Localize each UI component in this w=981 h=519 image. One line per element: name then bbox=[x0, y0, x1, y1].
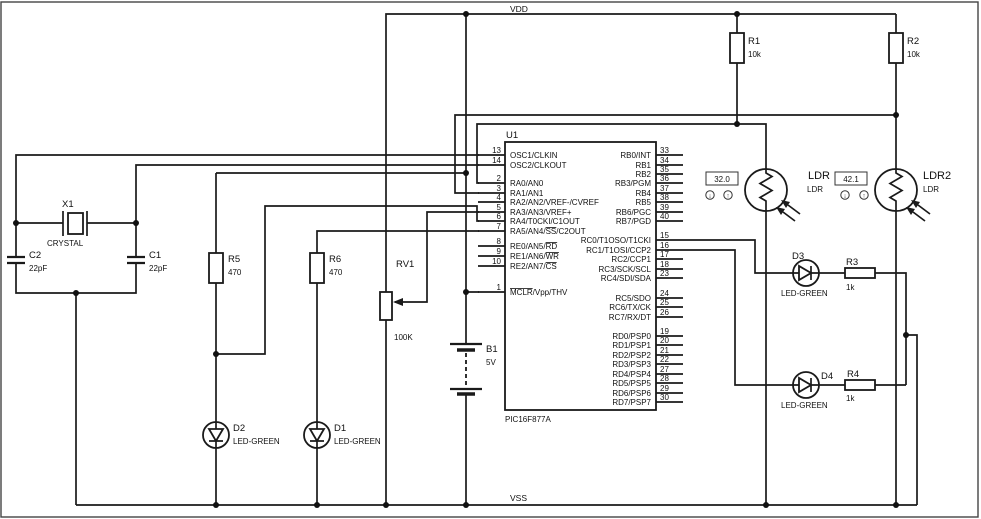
junction-dot bbox=[463, 289, 469, 295]
pin-number: 16 bbox=[660, 241, 669, 250]
pin-number: 25 bbox=[660, 298, 669, 307]
schematic-canvas: U1 PIC16F877A 13OSC1/CLKIN14OSC2/CLKOUT2… bbox=[0, 0, 981, 519]
pin-name: RC6/TX/CK bbox=[609, 303, 651, 312]
pin-name: RA3/AN3/VREF+ bbox=[510, 208, 572, 217]
junction-dot bbox=[73, 290, 79, 296]
capacitor-c2: C2 22pF bbox=[7, 250, 47, 273]
pin-name: RD7/PSP7 bbox=[612, 398, 651, 407]
resistor-ref: R4 bbox=[847, 369, 859, 380]
resistor-r3: R3 1k bbox=[845, 257, 875, 292]
pot-body bbox=[380, 292, 392, 320]
junction-dot bbox=[893, 112, 899, 118]
pin-number: 38 bbox=[660, 193, 669, 202]
resistor-body bbox=[209, 253, 223, 283]
ldr-light-arrows bbox=[913, 205, 930, 221]
down-arrow-icon[interactable]: ↓ bbox=[708, 193, 711, 200]
battery-b1: B1 5V bbox=[450, 344, 498, 394]
ldr2-ref: LDR2 bbox=[923, 170, 951, 182]
wire bbox=[16, 155, 479, 293]
pin-number: 40 bbox=[660, 212, 669, 221]
pin-name: OSC1/CLKIN bbox=[510, 151, 558, 160]
resistor-ref: R5 bbox=[228, 254, 240, 265]
pin-name: RD2/PSP2 bbox=[612, 351, 651, 360]
ldr-arrowhead bbox=[906, 207, 915, 215]
pin-number: 14 bbox=[492, 156, 501, 165]
junction-dot bbox=[213, 351, 219, 357]
pin-number: 3 bbox=[497, 184, 502, 193]
resistor-ref: R6 bbox=[329, 254, 341, 265]
led-value: LED-GREEN bbox=[233, 437, 280, 446]
ldr2-model: LDR bbox=[923, 185, 939, 194]
mcu-part-label: PIC16F877A bbox=[505, 415, 551, 424]
pin-number: 15 bbox=[660, 231, 669, 240]
resistor-r2: R2 10k bbox=[889, 33, 921, 63]
capacitor-ref: C2 bbox=[29, 250, 41, 261]
vdd-rail-label: VDD bbox=[510, 4, 528, 14]
junction-dot bbox=[314, 502, 320, 508]
resistor-body bbox=[310, 253, 324, 283]
pin-number: 8 bbox=[497, 237, 502, 246]
pin-name: RB6/PGC bbox=[616, 208, 651, 217]
pin-number: 35 bbox=[660, 165, 669, 174]
pin-name: RE1/AN6/WR bbox=[510, 252, 559, 261]
led-d1: D1 LED-GREEN bbox=[304, 422, 381, 448]
pin-number: 30 bbox=[660, 393, 669, 402]
pin-name: RB1 bbox=[635, 161, 651, 170]
wire bbox=[466, 14, 479, 505]
pin-number: 7 bbox=[497, 222, 502, 231]
resistor-value: 10k bbox=[907, 50, 921, 59]
potentiometer-rv1: RV1 100K bbox=[380, 259, 414, 342]
pin-name: RA1/AN1 bbox=[510, 189, 544, 198]
pin-number: 34 bbox=[660, 156, 669, 165]
junction-dots bbox=[13, 11, 909, 508]
vss-rail-label: VSS bbox=[510, 493, 527, 503]
pin-name: RB7/PGD bbox=[616, 217, 651, 226]
capacitor-plates bbox=[7, 257, 25, 263]
capacitor-ref: C1 bbox=[149, 250, 161, 261]
crystal-body bbox=[68, 213, 83, 234]
capacitor-plates bbox=[127, 257, 145, 263]
ldr1-symbol bbox=[745, 169, 800, 221]
wire bbox=[386, 212, 479, 505]
pin-number: 9 bbox=[497, 247, 502, 256]
resistor-body bbox=[845, 268, 875, 278]
pin-name: RE0/AN5/RD bbox=[510, 242, 557, 251]
ldr1-model: LDR bbox=[807, 185, 823, 194]
pin-name: RB3/PGM bbox=[615, 179, 651, 188]
resistor-ref: R3 bbox=[846, 257, 858, 268]
resistor-value: 470 bbox=[329, 268, 343, 277]
led-value: LED-GREEN bbox=[781, 401, 828, 410]
resistor-r5: R5 470 bbox=[209, 253, 242, 283]
pin-name: RB0/INT bbox=[620, 151, 651, 160]
junction-dot bbox=[213, 502, 219, 508]
pin-name: OSC2/CLKOUT bbox=[510, 161, 567, 170]
wire bbox=[216, 173, 479, 505]
crystal-value: CRYSTAL bbox=[47, 239, 84, 248]
pin-number: 2 bbox=[497, 174, 502, 183]
resistor-value: 1k bbox=[846, 283, 855, 292]
pin-name: RC3/SCK/SCL bbox=[599, 265, 652, 274]
junction-dot bbox=[463, 11, 469, 17]
resistor-ref: R1 bbox=[748, 36, 760, 47]
ldr-light-arrows bbox=[783, 205, 800, 221]
pin-number: 27 bbox=[660, 365, 669, 374]
ldr1-ref: LDR bbox=[808, 170, 830, 182]
ldr-reading: 32.0 bbox=[714, 175, 730, 184]
capacitor-value: 22pF bbox=[29, 264, 47, 273]
circuit-schematic: U1 PIC16F877A 13OSC1/CLKIN14OSC2/CLKOUT2… bbox=[0, 0, 981, 519]
junction-dot bbox=[903, 332, 909, 338]
pin-number: 17 bbox=[660, 250, 669, 259]
pin-number: 20 bbox=[660, 336, 669, 345]
pin-number: 23 bbox=[660, 269, 669, 278]
sheet-border bbox=[1, 2, 978, 517]
pin-name: RA2/AN2/VREF-/CVREF bbox=[510, 198, 599, 207]
junction-dot bbox=[463, 170, 469, 176]
pin-number: 5 bbox=[497, 203, 502, 212]
pin-name: RC7/RX/DT bbox=[609, 313, 651, 322]
down-arrow-icon[interactable]: ↓ bbox=[843, 193, 846, 200]
pin-name: RC1/T1OSI/CCP2 bbox=[586, 246, 651, 255]
pin-name: RE2/AN7/CS bbox=[510, 262, 557, 271]
led-ref: D1 bbox=[334, 423, 346, 434]
pin-number: 19 bbox=[660, 327, 669, 336]
pin-number: 6 bbox=[497, 212, 502, 221]
junction-dot bbox=[133, 220, 139, 226]
led-ref: D3 bbox=[792, 251, 804, 262]
pin-number: 29 bbox=[660, 384, 669, 393]
pin-name: RD5/PSP5 bbox=[612, 379, 651, 388]
junction-dot bbox=[383, 502, 389, 508]
junction-dot bbox=[893, 502, 899, 508]
ldr2-symbol bbox=[875, 169, 930, 221]
resistor-ref: R2 bbox=[907, 36, 919, 47]
pin-number: 22 bbox=[660, 355, 669, 364]
led-ref: D2 bbox=[233, 423, 245, 434]
resistor-r4: R4 1k bbox=[845, 369, 875, 403]
pin-name: RC2/CCP1 bbox=[611, 255, 651, 264]
capacitor-value: 22pF bbox=[149, 264, 167, 273]
pin-name: RC0/T1OSO/T1CKI bbox=[581, 236, 651, 245]
junction-dot bbox=[13, 220, 19, 226]
led-d3: D3 LED-GREEN bbox=[781, 251, 828, 298]
resistor-value: 10k bbox=[748, 50, 762, 59]
junction-dot bbox=[763, 502, 769, 508]
crystal-ref: X1 bbox=[62, 199, 74, 210]
junction-dot bbox=[463, 502, 469, 508]
pin-number: 28 bbox=[660, 374, 669, 383]
resistor-r6: R6 470 bbox=[310, 253, 343, 283]
pin-name: RD4/PSP4 bbox=[612, 370, 651, 379]
pin-name: RA4/T0CKI/C1OUT bbox=[510, 217, 580, 226]
resistor-body bbox=[730, 33, 744, 63]
pot-wiper-arrow bbox=[393, 298, 403, 306]
pin-name: RC4/SDI/SDA bbox=[601, 274, 652, 283]
pin-name: RC5/SDO bbox=[615, 294, 651, 303]
pin-name: RB2 bbox=[635, 170, 651, 179]
pin-number: 13 bbox=[492, 146, 501, 155]
pin-number: 37 bbox=[660, 184, 669, 193]
resistor-value: 470 bbox=[228, 268, 242, 277]
led-ref: D4 bbox=[821, 371, 833, 382]
pin-number: 36 bbox=[660, 174, 669, 183]
led-d4: D4 LED-GREEN bbox=[781, 371, 833, 410]
pin-number: 21 bbox=[660, 346, 669, 355]
pin-number: 4 bbox=[497, 193, 502, 202]
led-d2: D2 LED-GREEN bbox=[203, 422, 280, 448]
ldr-arrowhead bbox=[776, 207, 785, 215]
pin-name: RD3/PSP3 bbox=[612, 360, 651, 369]
capacitor-c1: C1 22pF bbox=[127, 250, 167, 273]
pin-name: RD1/PSP1 bbox=[612, 341, 651, 350]
pin-name: RD0/PSP0 bbox=[612, 332, 651, 341]
pin-number: 1 bbox=[497, 283, 502, 292]
pin-number: 18 bbox=[660, 260, 669, 269]
pin-number: 24 bbox=[660, 289, 669, 298]
junction-dot bbox=[734, 11, 740, 17]
junction-dot bbox=[734, 121, 740, 127]
pin-name: RB4 bbox=[635, 189, 651, 198]
led-value: LED-GREEN bbox=[334, 437, 381, 446]
mcu-ref: U1 bbox=[506, 130, 518, 141]
up-arrow-icon[interactable]: ↑ bbox=[862, 193, 865, 200]
pin-number: 26 bbox=[660, 308, 669, 317]
battery-value: 5V bbox=[486, 358, 496, 367]
battery-ref: B1 bbox=[486, 344, 498, 355]
pin-number: 33 bbox=[660, 146, 669, 155]
up-arrow-icon[interactable]: ↑ bbox=[726, 193, 729, 200]
ldr-reading: 42.1 bbox=[843, 175, 859, 184]
pin-name: RA5/AN4/SS/C2OUT bbox=[510, 227, 586, 236]
resistor-value: 1k bbox=[846, 394, 855, 403]
resistor-body bbox=[889, 33, 903, 63]
pin-name: RD6/PSP6 bbox=[612, 389, 651, 398]
pin-number: 10 bbox=[492, 257, 501, 266]
pin-number: 39 bbox=[660, 203, 669, 212]
pin-name: RA0/AN0 bbox=[510, 179, 544, 188]
pot-value: 100K bbox=[394, 333, 413, 342]
pin-name: MCLR/Vpp/THV bbox=[510, 288, 568, 297]
pot-ref: RV1 bbox=[396, 259, 414, 270]
pin-name: RB5 bbox=[635, 198, 651, 207]
resistor-body bbox=[845, 380, 875, 390]
resistor-r1: R1 10k bbox=[730, 33, 762, 63]
led-value: LED-GREEN bbox=[781, 289, 828, 298]
